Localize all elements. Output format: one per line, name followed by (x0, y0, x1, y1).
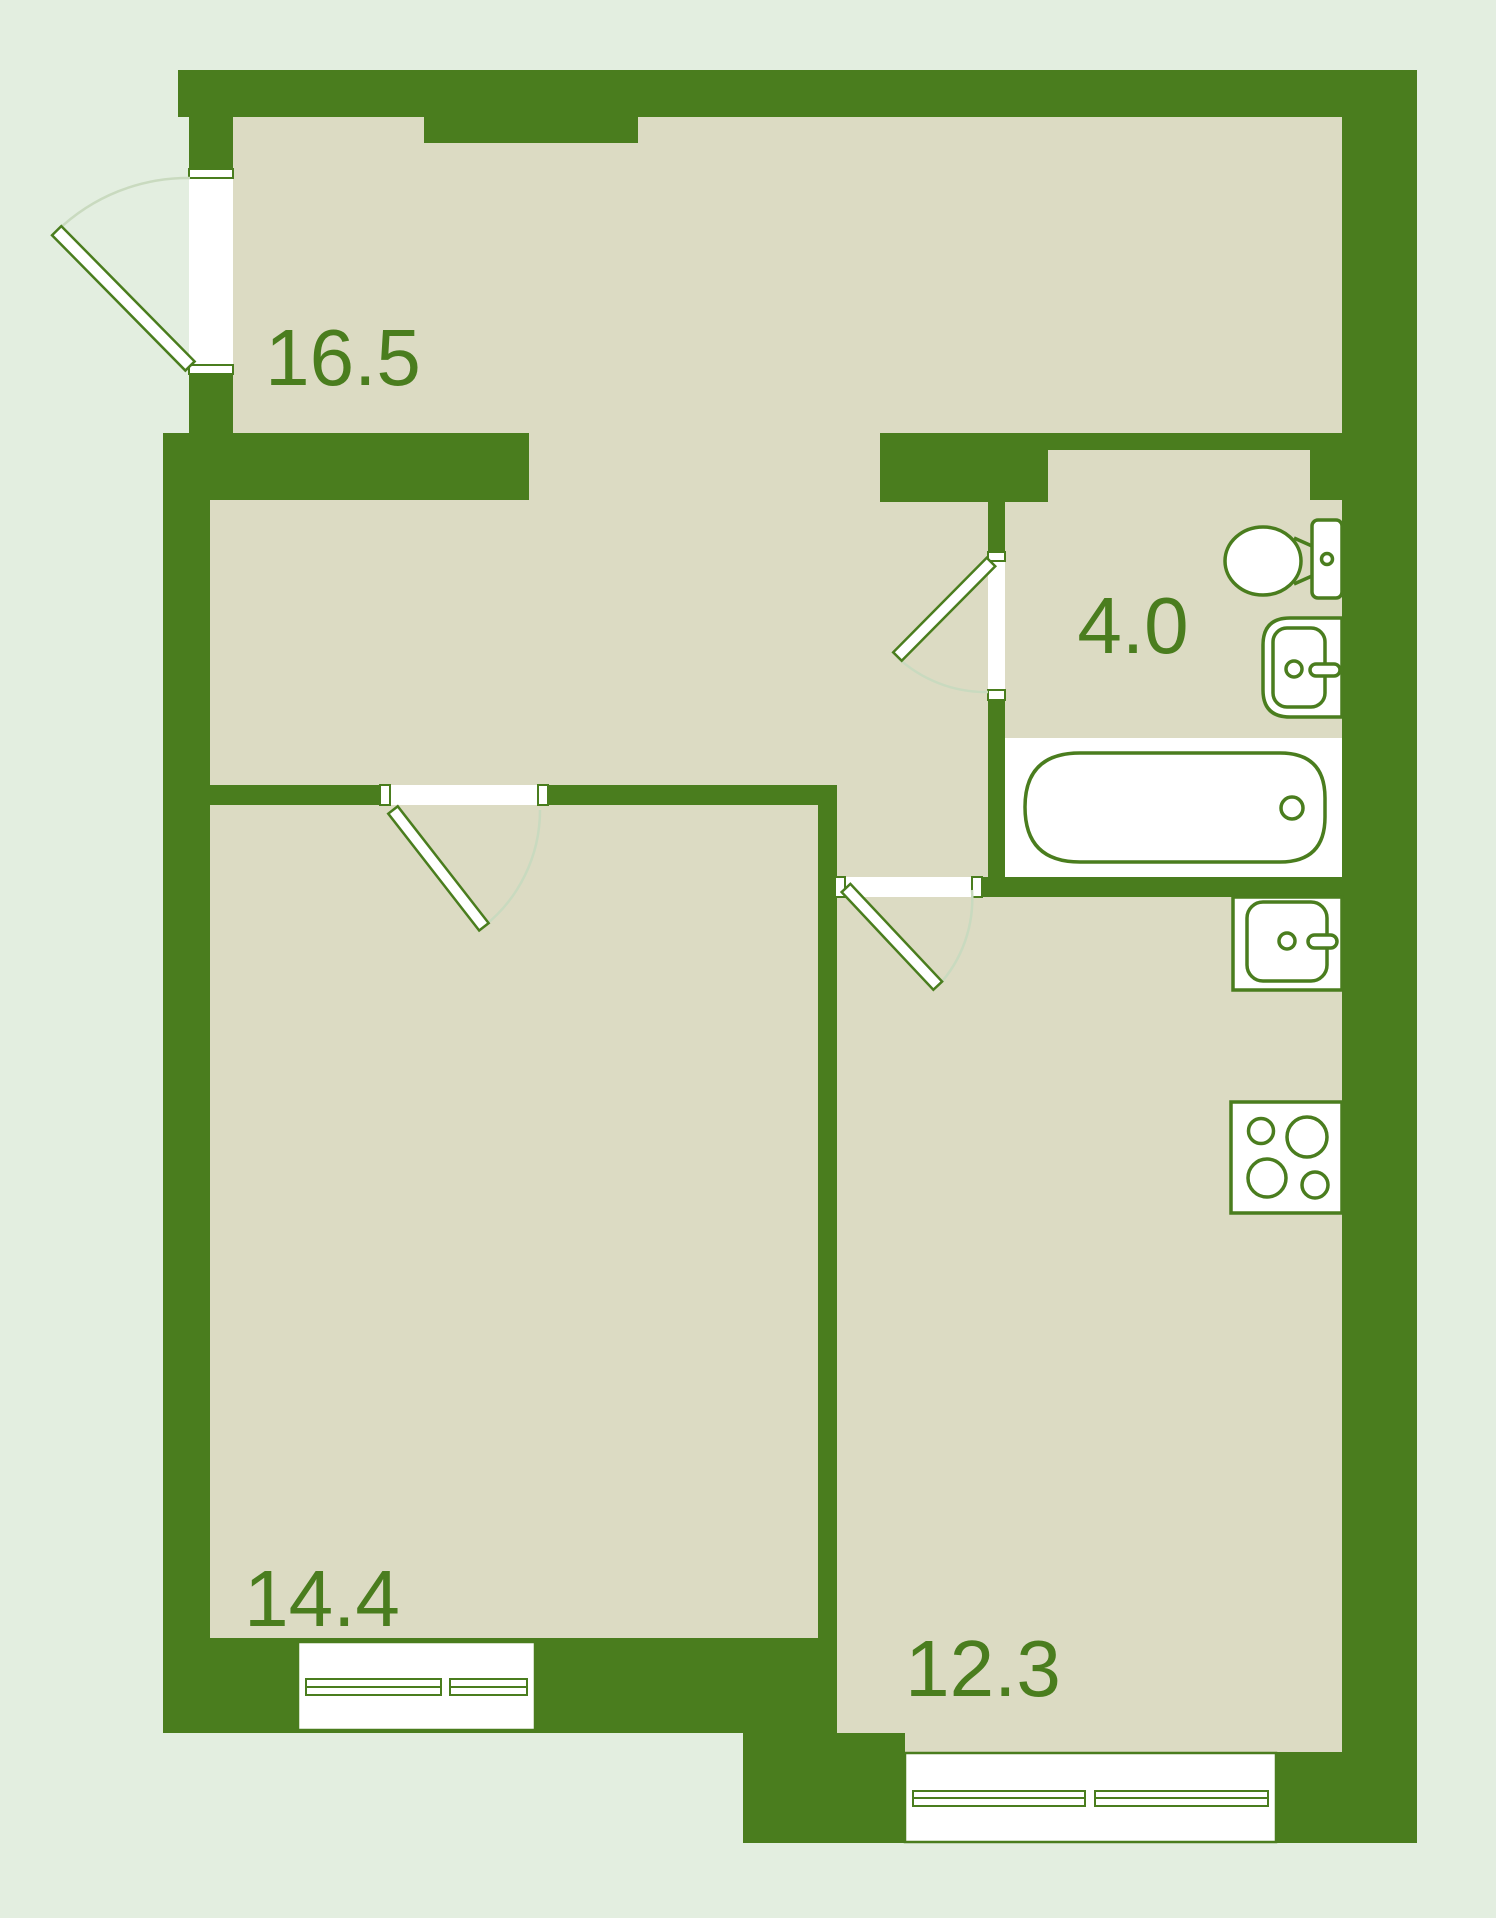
wall-bedroom-top-left (210, 785, 380, 805)
door-jamb (988, 552, 1005, 561)
bathroom-door-opening (988, 560, 1005, 690)
bedroom-window (298, 1642, 535, 1730)
room-label-bathroom: 4.0 (1077, 581, 1188, 670)
door-jamb (538, 785, 548, 805)
wall-under-bathtub (982, 877, 1342, 897)
kitchen-sink (1233, 897, 1342, 990)
wall-bathroom-stub (880, 433, 1048, 502)
wall-bottom-step (743, 1733, 905, 1843)
door-jamb (988, 690, 1005, 700)
room-label-living-room: 16.5 (265, 313, 421, 402)
floor-plan: 16.5 4.0 14.4 12.3 (0, 0, 1496, 1918)
washbasin (1263, 618, 1342, 717)
wall-top (178, 70, 1417, 117)
kitchen-window (905, 1753, 1276, 1842)
toilet (1225, 520, 1342, 598)
stove-top (1231, 1102, 1342, 1213)
wall-top-notch (424, 117, 638, 143)
wall-right (1342, 70, 1417, 1843)
wall-bedroom-kitchen-divider (818, 805, 837, 1752)
toilet-tank (1312, 520, 1342, 598)
wall-left-lower (163, 433, 210, 1733)
wall-left-upper (189, 70, 233, 169)
wall-right-step (1310, 450, 1342, 500)
room-label-bedroom: 14.4 (244, 1554, 400, 1643)
wall-left-mid (189, 374, 233, 433)
wall-bathroom-door-upper (988, 502, 1005, 552)
kitchen-door-opening (845, 877, 972, 897)
stove-hob (1231, 1102, 1342, 1213)
wall-bathroom-door-lower (988, 700, 1005, 877)
door-jamb (189, 365, 233, 374)
wall-kitchen-bottom (1268, 1752, 1342, 1843)
entrance-door-opening (189, 178, 233, 365)
floor-bedroom (210, 805, 818, 1638)
door-jamb (380, 785, 390, 805)
door-jamb (189, 169, 233, 178)
washbasin-tap (1310, 664, 1340, 676)
bathtub (1005, 738, 1342, 877)
floor-plan-drawing: 16.5 4.0 14.4 12.3 (0, 0, 1496, 1918)
room-label-kitchen: 12.3 (905, 1624, 1061, 1713)
bedroom-door-opening (390, 785, 538, 805)
door-jamb (972, 877, 982, 897)
wall-hall-block (163, 433, 529, 500)
toilet-bowl (1225, 527, 1301, 595)
bathtub-block (1005, 738, 1342, 877)
wall-bedroom-top-right (548, 785, 837, 805)
wall-bathroom-top (1048, 433, 1342, 450)
kitchen-sink-tap (1308, 935, 1337, 948)
